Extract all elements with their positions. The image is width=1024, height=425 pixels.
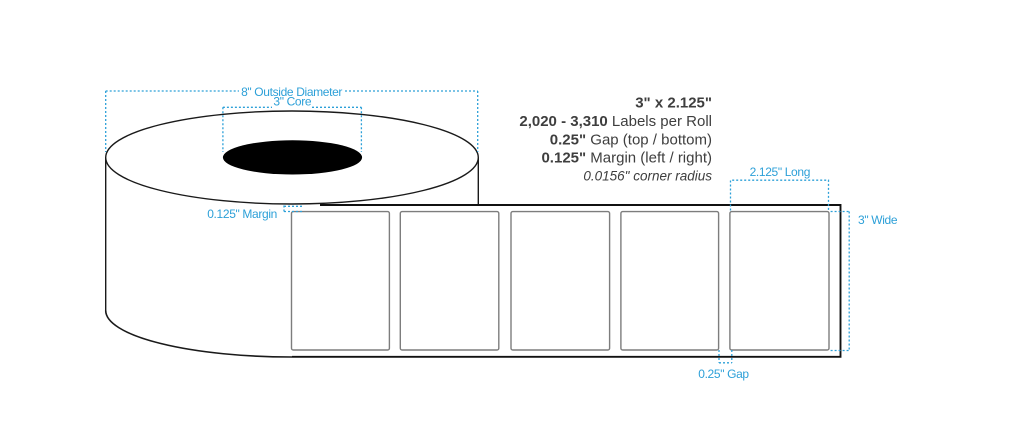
svg-text:3" x 2.125": 3" x 2.125" bbox=[635, 95, 712, 112]
svg-text:0.125" Margin (left / right): 0.125" Margin (left / right) bbox=[541, 150, 712, 167]
svg-text:0.25" Gap (top / bottom): 0.25" Gap (top / bottom) bbox=[550, 132, 712, 149]
svg-text:2.125" Long: 2.125" Long bbox=[750, 165, 810, 179]
svg-text:0.0156" corner radius: 0.0156" corner radius bbox=[583, 169, 712, 184]
svg-text:0.125" Margin: 0.125" Margin bbox=[207, 207, 277, 221]
svg-text:2,020 - 3,310 Labels per Roll: 2,020 - 3,310 Labels per Roll bbox=[519, 113, 712, 130]
svg-text:3" Core: 3" Core bbox=[273, 95, 312, 109]
svg-text:3" Wide: 3" Wide bbox=[858, 213, 898, 227]
svg-text:0.25" Gap: 0.25" Gap bbox=[698, 367, 749, 381]
